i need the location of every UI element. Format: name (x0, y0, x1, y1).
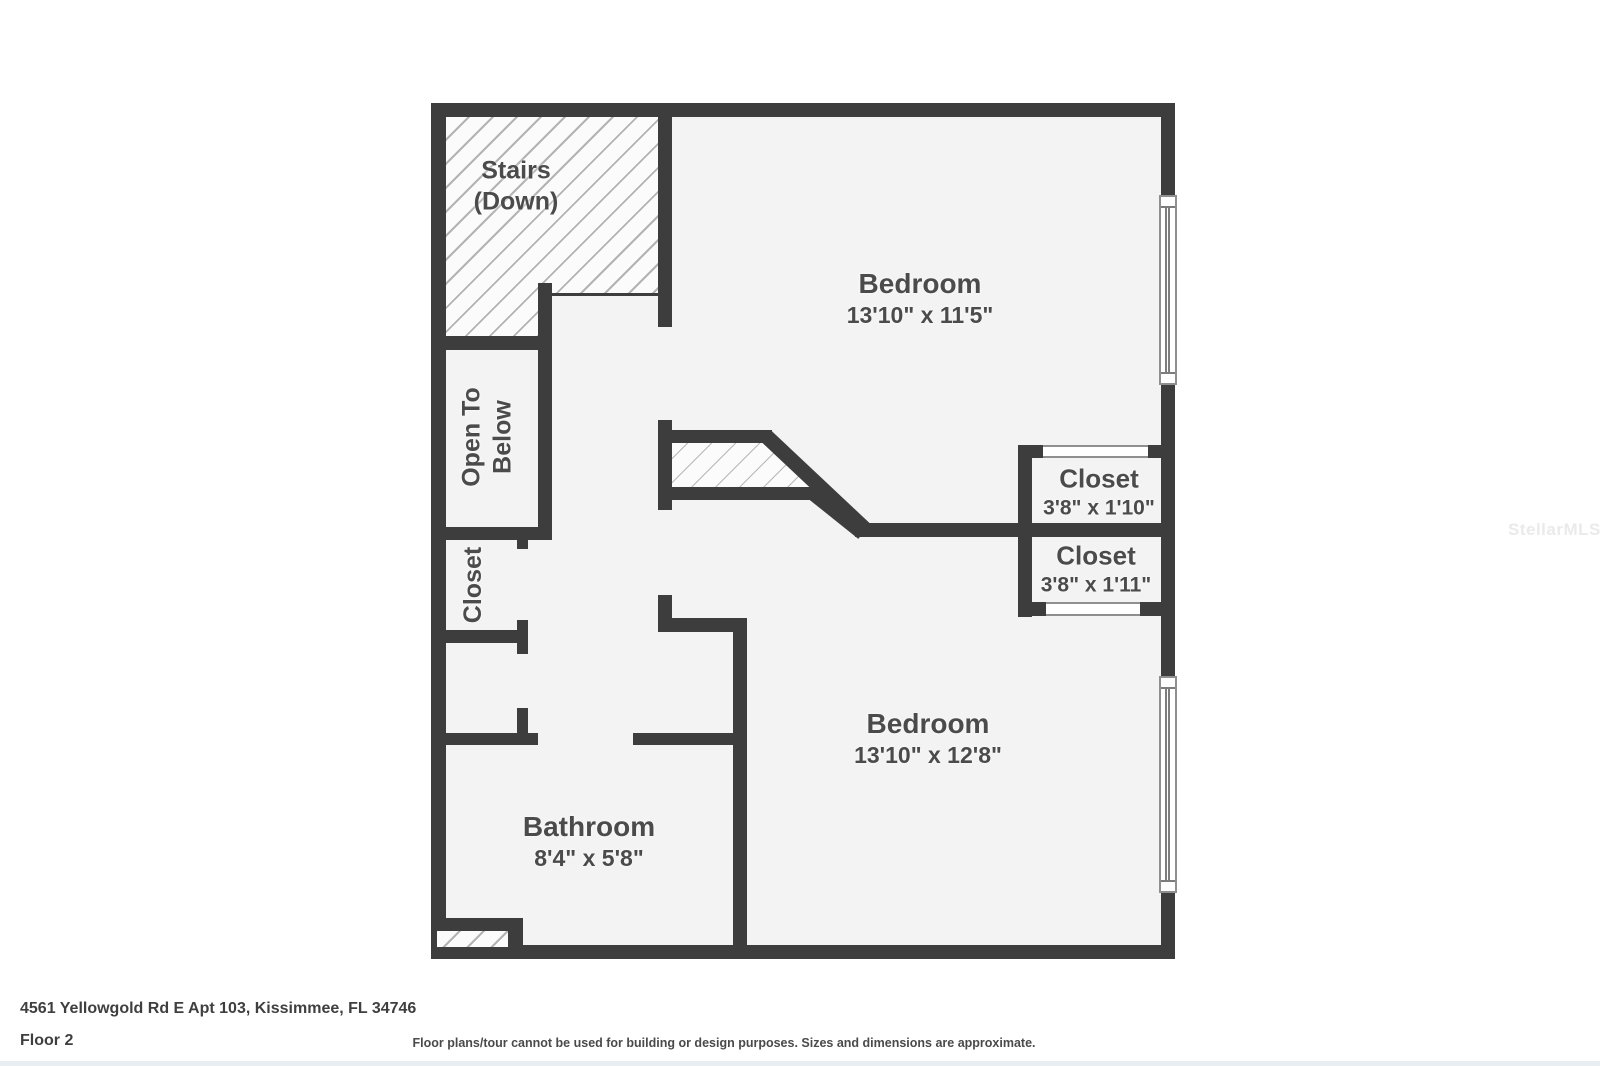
closet2-dimensions: 3'8" x 1'11" (1041, 572, 1152, 598)
window (1159, 676, 1177, 893)
wall (431, 336, 552, 350)
wall (633, 733, 747, 745)
wall (431, 527, 552, 540)
open-to-below-line2: Below (487, 387, 518, 487)
bedroom1-dimensions: 13'10" x 11'5" (847, 301, 994, 329)
wall (517, 643, 528, 654)
wall (1148, 445, 1161, 458)
closet1-name: Closet (1043, 463, 1155, 495)
open-to-below-line1: Open To (457, 387, 488, 487)
wall (658, 420, 672, 510)
window-frame (1161, 880, 1175, 882)
wall (1140, 602, 1161, 616)
wall (508, 918, 523, 947)
bedroom1-label: Bedroom 13'10" x 11'5" (847, 267, 994, 329)
wall (658, 117, 672, 327)
closet1-label: Closet 3'8" x 1'10" (1043, 463, 1155, 520)
wall (733, 618, 747, 945)
closet2-name: Closet (1041, 540, 1152, 572)
floor-plan-page: Stairs (Down) Bedroom 13'10" x 11'5" Clo… (0, 0, 1600, 1066)
window-glass (1165, 207, 1170, 373)
wall (431, 733, 538, 745)
door-opening (1046, 602, 1140, 616)
wall (1032, 445, 1043, 458)
window (1159, 195, 1177, 385)
wall (517, 708, 528, 733)
hatched-niche (437, 931, 508, 947)
bedroom2-dimensions: 13'10" x 12'8" (854, 741, 1002, 769)
closet2-label: Closet 3'8" x 1'11" (1041, 540, 1152, 597)
open-to-below-label: Open To Below (457, 387, 518, 487)
left-closet-label: Closet (458, 547, 489, 623)
bedroom2-label: Bedroom 13'10" x 12'8" (854, 707, 1002, 769)
bathroom-label: Bathroom 8'4" x 5'8" (523, 810, 655, 872)
window-frame (1161, 372, 1175, 374)
bathroom-name: Bathroom (523, 810, 655, 844)
door-opening (1043, 445, 1148, 458)
wall (1032, 602, 1046, 616)
stair-step-edge (552, 293, 658, 296)
bedroom2-name: Bedroom (854, 707, 1002, 741)
window-glass (1165, 688, 1170, 881)
property-address: 4561 Yellowgold Rd E Apt 103, Kissimmee,… (20, 1000, 416, 1018)
wall (431, 630, 528, 643)
bottom-edge-strip (0, 1061, 1600, 1066)
bedroom1-name: Bedroom (847, 267, 994, 301)
wall (1018, 445, 1032, 617)
wall (431, 945, 1175, 959)
window-frame (1161, 206, 1175, 208)
floor-number: Floor 2 (20, 1032, 73, 1050)
stellar-mls-watermark: StellarMLS (1508, 520, 1600, 540)
window-frame (1161, 687, 1175, 689)
wall (431, 103, 1175, 117)
bathroom-dimensions: 8'4" x 5'8" (523, 844, 655, 872)
wall (517, 527, 528, 549)
disclaimer-text: Floor plans/tour cannot be used for buil… (412, 1036, 1035, 1050)
left-closet-name: Closet (458, 547, 489, 623)
stairs-label-line2: (Down) (474, 186, 559, 217)
wall (538, 283, 552, 540)
closet1-dimensions: 3'8" x 1'10" (1043, 495, 1155, 521)
stairs-label-line1: Stairs (474, 156, 559, 187)
wall (1032, 523, 1161, 537)
stairs-label: Stairs (Down) (474, 156, 559, 217)
